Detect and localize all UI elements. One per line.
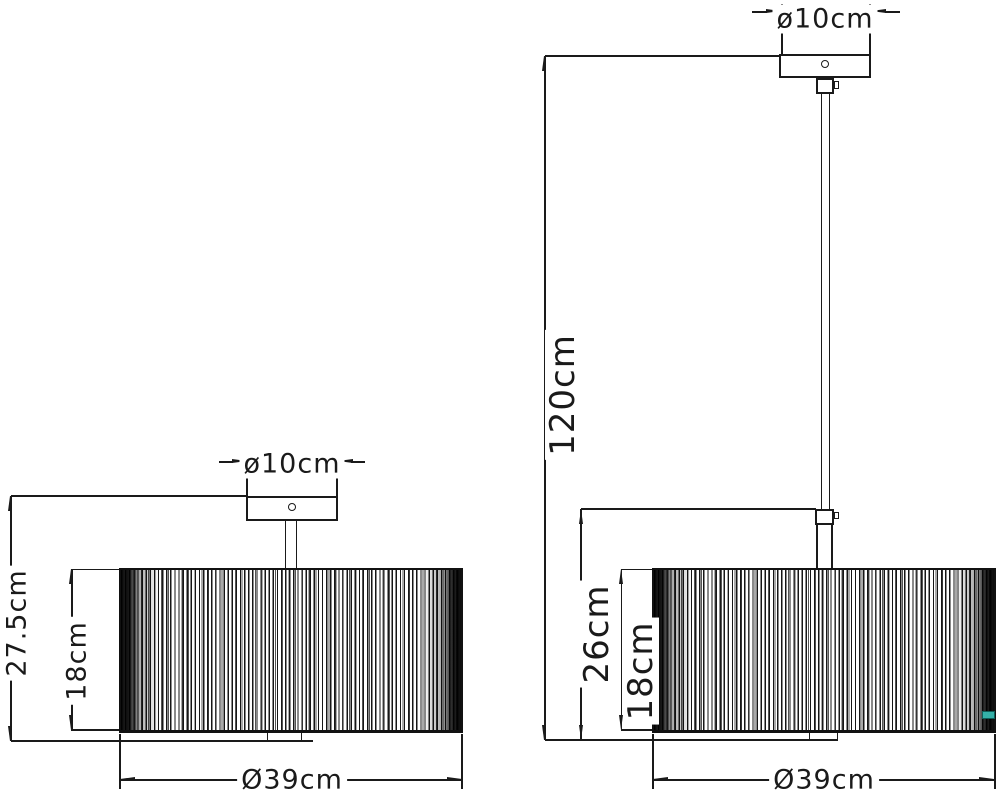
dim-label-canopy-diameter-right: ø10cm <box>772 5 877 34</box>
arrowhead-down <box>542 725 546 740</box>
arrowhead-up <box>8 496 12 511</box>
dimension-line <box>219 461 233 463</box>
extension-line <box>71 569 119 571</box>
extension-line <box>11 495 246 497</box>
arrowhead-up <box>542 56 546 71</box>
dim-label-lower-section-height: 26cm <box>579 580 615 687</box>
dimension-line <box>752 11 767 13</box>
watermark-chip <box>982 711 995 719</box>
extension-line <box>11 740 313 742</box>
extension-line <box>71 729 119 731</box>
arrowhead-right <box>979 777 994 781</box>
right-lamp-top-connector <box>816 78 834 94</box>
dimension-line <box>351 461 365 463</box>
lamp-dimension-drawing: ø10cm 27.5cm 18cm Ø39cm ø10cm <box>0 0 1000 795</box>
arrowhead-left <box>120 777 135 781</box>
arrowhead-up <box>619 569 623 584</box>
right-lamp-shade <box>652 568 996 733</box>
arrowhead-up <box>579 509 583 524</box>
right-lamp-lower-tube <box>816 525 833 569</box>
dim-label-shade-diameter-right: Ø39cm <box>769 766 879 795</box>
arrowhead-down <box>69 715 73 730</box>
dim-label-overall-height-left: 27.5cm <box>3 565 32 680</box>
dim-label-overall-height-right: 120cm <box>545 330 581 460</box>
left-lamp-shade <box>119 568 463 733</box>
dim-label-shade-height-right: 18cm <box>623 617 659 724</box>
dim-label-shade-height-left: 18cm <box>63 617 92 705</box>
left-canopy-screw-hole <box>288 503 296 511</box>
arrowhead-right <box>447 777 462 781</box>
right-lamp-rod <box>821 94 830 509</box>
dim-label-canopy-diameter-left: ø10cm <box>239 450 344 479</box>
right-top-connector-screw <box>834 81 839 89</box>
extension-line <box>545 55 779 57</box>
extension-line <box>545 739 838 741</box>
extension-line <box>621 729 652 731</box>
left-lamp-stem <box>285 521 297 569</box>
dimension-line <box>885 11 900 13</box>
right-lamp-lower-connector <box>815 509 834 525</box>
extension-line <box>621 569 652 571</box>
extension-line <box>994 734 996 789</box>
right-lower-connector-screw <box>834 512 839 519</box>
arrowhead-down <box>8 726 12 741</box>
arrowhead-down <box>579 725 583 740</box>
dim-label-shade-diameter-left: Ø39cm <box>237 766 347 795</box>
right-canopy-screw-hole <box>821 60 829 68</box>
arrowhead-up <box>69 569 73 584</box>
extension-line <box>581 508 816 510</box>
arrowhead-left <box>653 777 668 781</box>
